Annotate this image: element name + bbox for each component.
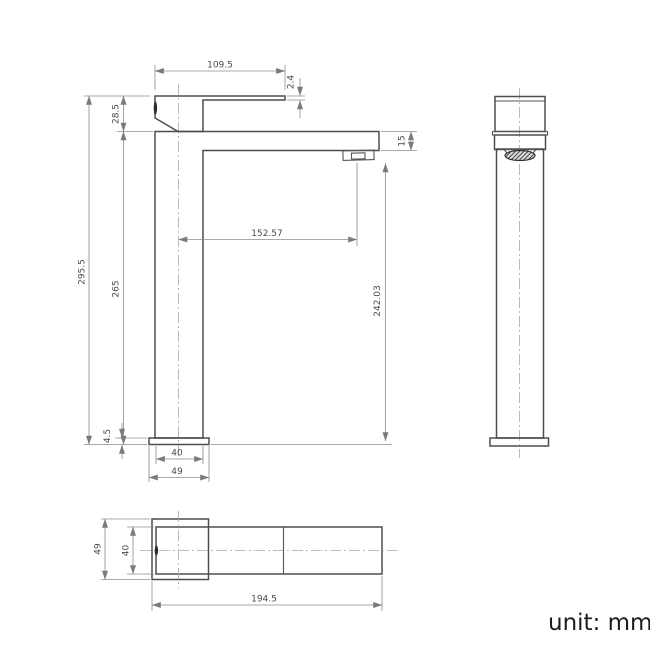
handle-edge-shading — [154, 102, 157, 115]
dim-body-width: 40 — [156, 449, 203, 460]
dim-spout-section-height: 15 — [398, 132, 412, 151]
dim-overall-height: 295.5 — [78, 96, 90, 445]
dim-overall-length: 194.5 — [152, 595, 382, 606]
faucet-technical-drawing: 109.5 2.4 28.5 295.5 265 15 152.57 — [0, 0, 650, 650]
side-seam-band — [493, 132, 548, 136]
side-view — [490, 88, 549, 458]
front-view-extension-lines — [84, 65, 417, 482]
top-view-extension-lines — [101, 519, 382, 611]
aerator-mesh-side — [505, 151, 535, 161]
top-base-plate — [152, 519, 209, 580]
front-view: 109.5 2.4 28.5 295.5 265 15 152.57 — [78, 61, 418, 483]
top-view: 49 40 194.5 — [94, 511, 399, 611]
aerator-front — [343, 150, 374, 160]
dim-body-depth: 40 — [122, 527, 134, 574]
dimension-label: 49 — [171, 467, 183, 477]
front-view-outline — [149, 96, 379, 445]
dim-spout-reach: 152.57 — [179, 229, 358, 240]
side-spout-face — [495, 135, 546, 150]
dimension-label: 152.57 — [251, 229, 283, 239]
body-and-spout-outline — [155, 132, 379, 439]
side-handle-block — [495, 97, 545, 132]
dimension-label: 109.5 — [207, 61, 233, 71]
handle-lever-outline — [155, 96, 285, 132]
dimension-label: 49 — [94, 543, 104, 555]
technical-drawing-page: 109.5 2.4 28.5 295.5 265 15 152.57 — [0, 0, 650, 650]
dim-body-height: 265 — [112, 132, 124, 445]
dim-base-width: 49 — [149, 467, 209, 478]
dimension-label: 40 — [171, 449, 183, 459]
dimension-label: 28.5 — [112, 104, 122, 124]
dimension-label: 242.03 — [373, 285, 383, 317]
dimension-label: 4.5 — [103, 429, 113, 443]
side-body-column — [497, 149, 544, 438]
dimension-label: 194.5 — [251, 595, 277, 605]
top-edge-shading — [155, 546, 158, 556]
dimension-label: 40 — [122, 545, 132, 557]
unit-label: unit: mm — [548, 610, 650, 636]
dimension-label: 15 — [398, 135, 408, 146]
dim-handle-height: 28.5 — [112, 96, 124, 132]
dim-base-depth: 49 — [94, 519, 106, 580]
dim-base-plate-thickness: 4.5 — [103, 423, 122, 459]
dimension-label: 295.5 — [78, 259, 88, 285]
dimension-label: 2.4 — [287, 75, 297, 90]
dim-lever-length: 109.5 — [155, 61, 285, 72]
dim-outlet-height: 242.03 — [373, 164, 386, 442]
aerator-front-inner — [351, 153, 365, 159]
base-plate-front — [149, 438, 209, 445]
dimension-label: 265 — [112, 280, 122, 297]
